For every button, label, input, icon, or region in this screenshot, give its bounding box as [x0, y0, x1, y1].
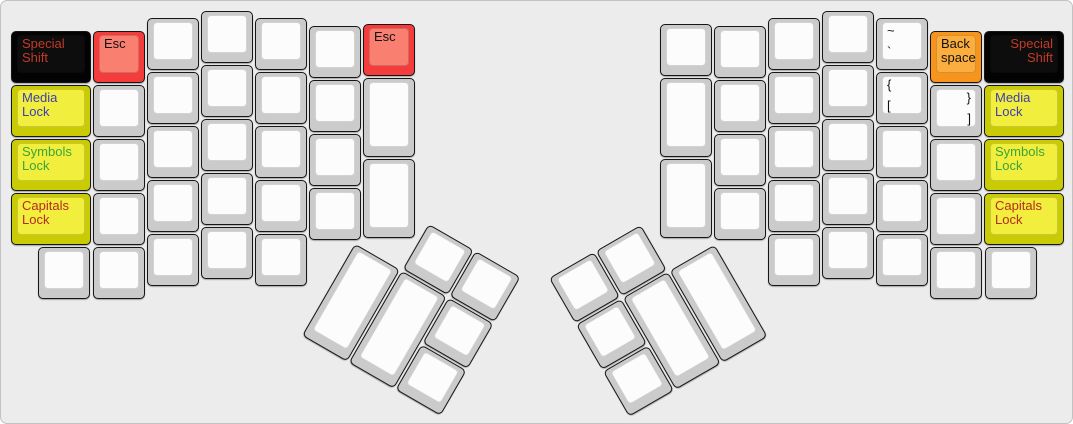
- key-right-c5-r3[interactable]: [714, 134, 766, 186]
- key-right-c4-r3[interactable]: [768, 126, 820, 178]
- key-right-c0-r5[interactable]: [985, 247, 1037, 299]
- key-right-c5-r1-top: [720, 30, 760, 68]
- key-left-c3-r5-top: [207, 231, 247, 269]
- key-right-c3-r5-top: [828, 231, 868, 269]
- backspace-key-label: Back space: [941, 37, 976, 65]
- media-lock-left[interactable]: Media Lock: [11, 85, 91, 137]
- key-right-c3-r3[interactable]: [822, 119, 874, 171]
- key-right-c2-r5[interactable]: [876, 234, 928, 286]
- esc-left[interactable]: Esc: [93, 31, 145, 83]
- key-left-c4-r1[interactable]: [255, 18, 307, 70]
- media-lock-right-label: Media Lock: [995, 91, 1030, 119]
- key-right-c5-r1[interactable]: [714, 26, 766, 78]
- key-right-c4-r2[interactable]: [768, 72, 820, 124]
- key-left-c4-r4[interactable]: [255, 180, 307, 232]
- key-left-c2-r5-top: [153, 238, 193, 276]
- key-left-c2-r2[interactable]: [147, 72, 199, 124]
- key-left-c3-r2[interactable]: [201, 65, 253, 117]
- key-left-c2-r3-top: [153, 130, 193, 168]
- key-right-c5-r4-top: [720, 192, 760, 230]
- capitals-lock-right-label: Capitals Lock: [995, 199, 1042, 227]
- thumb-left-top-2-top: [460, 257, 514, 310]
- key-left-c5-r2-top: [315, 84, 355, 122]
- esc-left-inner-label: Esc: [374, 30, 396, 44]
- key-right-c5-r4[interactable]: [714, 188, 766, 240]
- symbols-lock-left[interactable]: Symbols Lock: [11, 139, 91, 191]
- key-left-c0-r5[interactable]: [38, 247, 90, 299]
- key-left-c4-r5-top: [261, 238, 301, 276]
- key-left-c5-r1-top: [315, 30, 355, 68]
- key-right-c6-r1-top: [666, 28, 706, 66]
- key-left-c4-r3-top: [261, 130, 301, 168]
- backspace-key[interactable]: Back space: [930, 31, 982, 83]
- esc-left-label: Esc: [104, 37, 126, 51]
- key-left-c2-r4[interactable]: [147, 180, 199, 232]
- tilde-key-label: `: [887, 45, 891, 59]
- key-right-c3-r3-top: [828, 123, 868, 161]
- key-left-c1-r5[interactable]: [93, 247, 145, 299]
- key-left-c1-r4[interactable]: [93, 193, 145, 245]
- key-left-c5-r4-top: [315, 192, 355, 230]
- key-right-c2-r3-top: [882, 130, 922, 168]
- key-left-c2-r3[interactable]: [147, 126, 199, 178]
- key-left-c3-r3-top: [207, 123, 247, 161]
- key-right-c2-r4-top: [882, 184, 922, 222]
- key-left-c5-r3-top: [315, 138, 355, 176]
- media-lock-left-label: Media Lock: [22, 91, 57, 119]
- key-right-c0-r5-top: [991, 251, 1031, 289]
- key-right-c3-r1-top: [828, 15, 868, 53]
- special-shift-left-top: Special Shift: [17, 35, 85, 73]
- key-right-c4-r1[interactable]: [768, 18, 820, 70]
- capitals-lock-right-top: Capitals Lock: [990, 197, 1058, 235]
- key-right-c2-r4[interactable]: [876, 180, 928, 232]
- key-left-c1-r3[interactable]: [93, 139, 145, 191]
- capitals-lock-left-top: Capitals Lock: [17, 197, 85, 235]
- capitals-lock-right[interactable]: Capitals Lock: [984, 193, 1064, 245]
- bracket-close-key-label: }: [967, 91, 971, 105]
- symbols-lock-right-label: Symbols Lock: [995, 145, 1045, 173]
- esc-left-top: Esc: [99, 35, 139, 73]
- special-shift-left[interactable]: Special Shift: [11, 31, 91, 83]
- keyboard-canvas: Special ShiftMedia LockSymbols LockCapit…: [0, 0, 1073, 424]
- symbols-lock-left-top: Symbols Lock: [17, 143, 85, 181]
- key-left-c5-r2[interactable]: [309, 80, 361, 132]
- key-left-c3-r3[interactable]: [201, 119, 253, 171]
- key-right-c4-r3-top: [774, 130, 814, 168]
- key-right-c1-r5-top: [936, 251, 976, 289]
- bracket-close-key[interactable]: }]: [930, 85, 982, 137]
- key-right-c6-r2-top: [666, 82, 706, 147]
- key-left-c2-r1[interactable]: [147, 18, 199, 70]
- special-shift-left-label: Special Shift: [22, 37, 65, 65]
- key-left-c4-r1-top: [261, 22, 301, 60]
- key-right-c5-r3-top: [720, 138, 760, 176]
- key-right-c5-r2-top: [720, 84, 760, 122]
- key-left-c2-r1-top: [153, 22, 193, 60]
- special-shift-right[interactable]: Special Shift: [984, 31, 1064, 83]
- key-left-c1-r3-top: [99, 143, 139, 181]
- key-right-c5-r2[interactable]: [714, 80, 766, 132]
- bracket-open-key-label: {: [887, 78, 891, 92]
- key-left-c6-r2-top: [369, 82, 409, 147]
- key-left-c4-r2-top: [261, 76, 301, 114]
- key-right-c6-r1[interactable]: [660, 24, 712, 76]
- key-left-c3-r4[interactable]: [201, 173, 253, 225]
- media-lock-right-top: Media Lock: [990, 89, 1058, 127]
- key-left-c3-r1-top: [207, 15, 247, 53]
- tilde-key-label: ~: [887, 24, 895, 38]
- media-lock-left-top: Media Lock: [17, 89, 85, 127]
- key-left-c2-r4-top: [153, 184, 193, 222]
- key-right-c4-r2-top: [774, 76, 814, 114]
- key-right-c1-r4-top: [936, 197, 976, 235]
- key-right-c3-r2[interactable]: [822, 65, 874, 117]
- key-left-c3-r5[interactable]: [201, 227, 253, 279]
- thumb-right-top-2-top: [603, 231, 657, 284]
- key-left-c2-r5[interactable]: [147, 234, 199, 286]
- key-right-c3-r5[interactable]: [822, 227, 874, 279]
- key-left-c5-r4[interactable]: [309, 188, 361, 240]
- bracket-close-key-label: ]: [967, 112, 971, 126]
- key-right-c4-r1-top: [774, 22, 814, 60]
- tilde-key[interactable]: ~`: [876, 18, 928, 70]
- key-right-c1-r5[interactable]: [930, 247, 982, 299]
- key-left-c1-r2[interactable]: [93, 85, 145, 137]
- tilde-key-top: ~`: [882, 22, 922, 60]
- thumb-left-top-1-top: [413, 230, 467, 283]
- key-right-c6-r2[interactable]: [660, 78, 712, 157]
- thumb-right-top-1-top: [556, 258, 610, 311]
- key-left-c1-r4-top: [99, 197, 139, 235]
- symbols-lock-right-top: Symbols Lock: [990, 143, 1058, 181]
- key-left-c6-r2[interactable]: [363, 78, 415, 157]
- key-right-c3-r4[interactable]: [822, 173, 874, 225]
- key-left-c4-r2[interactable]: [255, 72, 307, 124]
- backspace-key-top: Back space: [936, 35, 976, 73]
- media-lock-right[interactable]: Media Lock: [984, 85, 1064, 137]
- special-shift-right-label: Special Shift: [1010, 37, 1053, 65]
- capitals-lock-left-label: Capitals Lock: [22, 199, 69, 227]
- key-right-c1-r3-top: [936, 143, 976, 181]
- key-left-c2-r2-top: [153, 76, 193, 114]
- key-right-c1-r4[interactable]: [930, 193, 982, 245]
- key-right-c1-r3[interactable]: [930, 139, 982, 191]
- key-left-c3-r2-top: [207, 69, 247, 107]
- key-right-c4-r4[interactable]: [768, 180, 820, 232]
- key-right-c2-r5-top: [882, 238, 922, 276]
- key-right-c2-r3[interactable]: [876, 126, 928, 178]
- key-right-c4-r5[interactable]: [768, 234, 820, 286]
- key-left-c1-r5-top: [99, 251, 139, 289]
- key-left-c4-r5[interactable]: [255, 234, 307, 286]
- key-right-c4-r5-top: [774, 238, 814, 276]
- key-right-c4-r4-top: [774, 184, 814, 222]
- bracket-open-key-top: {[: [882, 76, 922, 114]
- key-left-c3-r1[interactable]: [201, 11, 253, 63]
- symbols-lock-right[interactable]: Symbols Lock: [984, 139, 1064, 191]
- key-left-c3-r4-top: [207, 177, 247, 215]
- bracket-close-key-top: }]: [936, 89, 976, 127]
- bracket-open-key[interactable]: {[: [876, 72, 928, 124]
- key-left-c4-r3[interactable]: [255, 126, 307, 178]
- key-left-c4-r4-top: [261, 184, 301, 222]
- key-left-c1-r2-top: [99, 89, 139, 127]
- key-left-c5-r1[interactable]: [309, 26, 361, 78]
- symbols-lock-left-label: Symbols Lock: [22, 145, 72, 173]
- esc-left-inner[interactable]: Esc: [363, 24, 415, 76]
- special-shift-right-top: Special Shift: [990, 35, 1058, 73]
- key-right-c3-r4-top: [828, 177, 868, 215]
- bracket-open-key-label: [: [887, 99, 891, 113]
- capitals-lock-left[interactable]: Capitals Lock: [11, 193, 91, 245]
- key-right-c3-r1[interactable]: [822, 11, 874, 63]
- key-right-c3-r2-top: [828, 69, 868, 107]
- esc-left-inner-top: Esc: [369, 28, 409, 66]
- key-left-c5-r3[interactable]: [309, 134, 361, 186]
- key-left-c0-r5-top: [44, 251, 84, 289]
